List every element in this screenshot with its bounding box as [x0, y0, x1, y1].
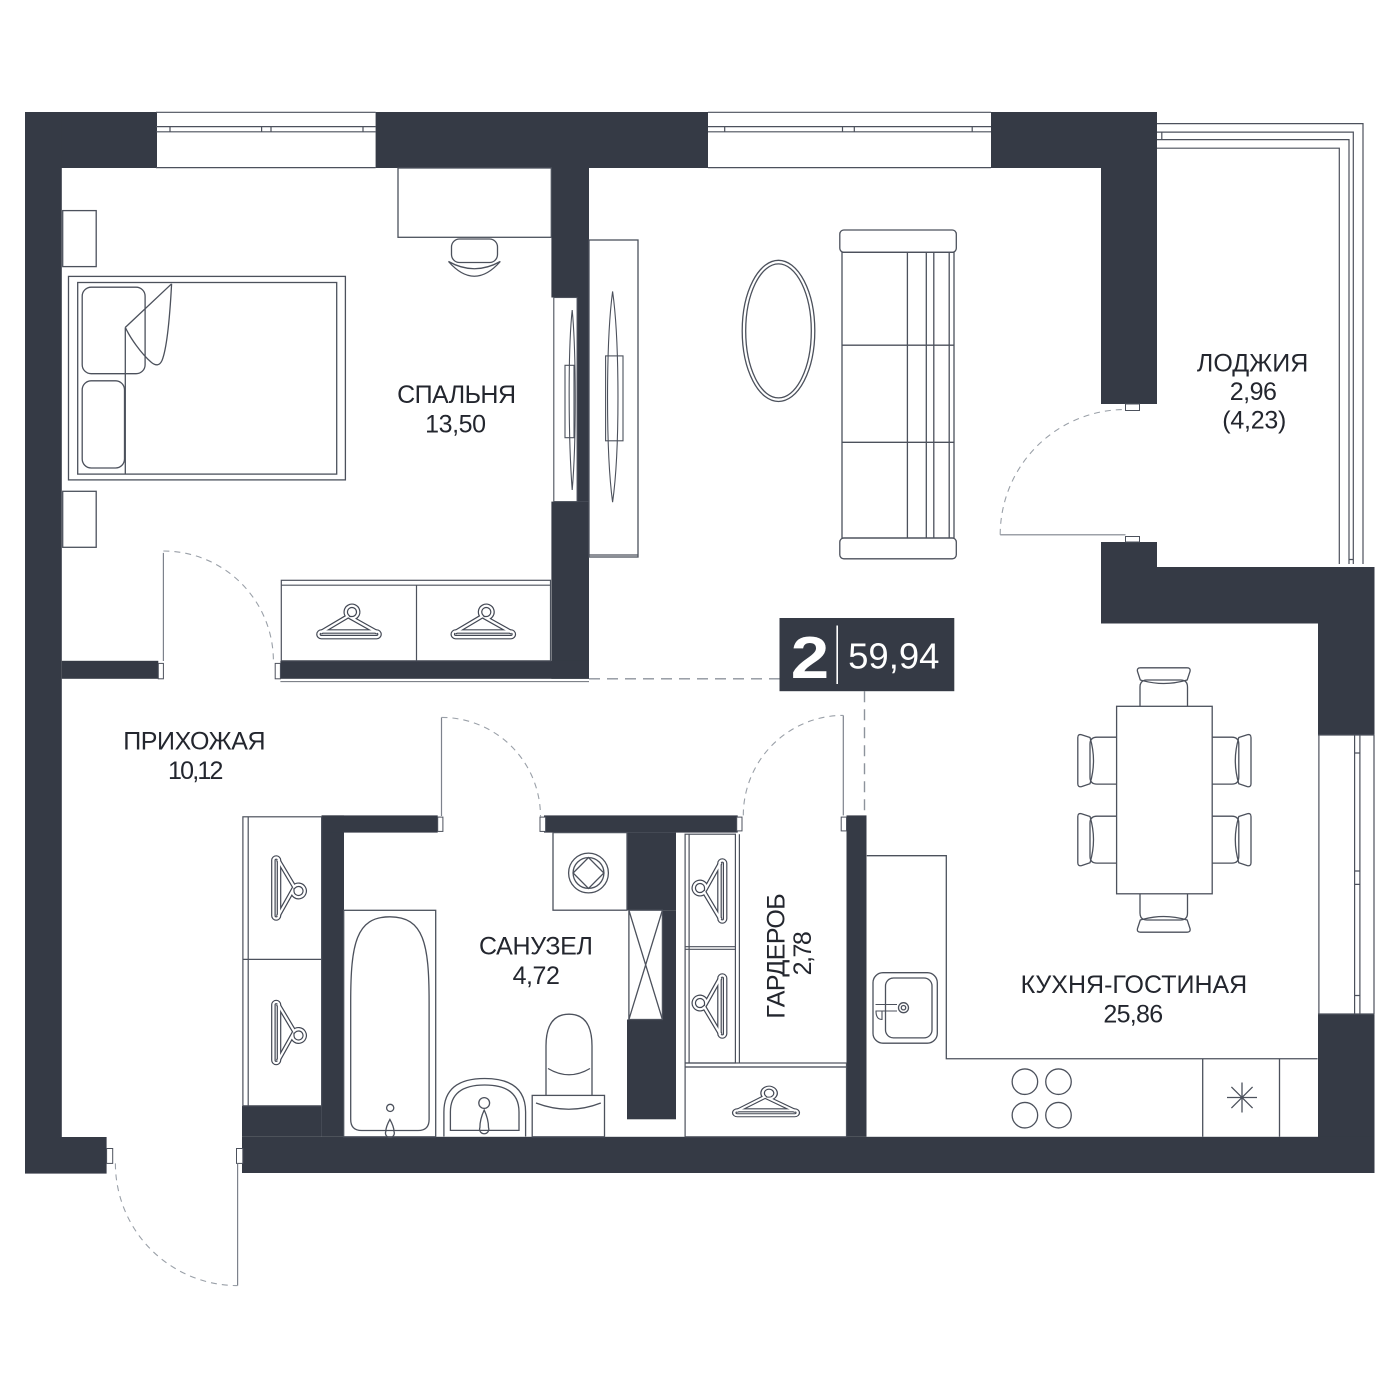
svg-text:10,12: 10,12: [168, 757, 222, 785]
svg-text:13,50: 13,50: [425, 410, 486, 438]
svg-text:СПАЛЬНЯ: СПАЛЬНЯ: [397, 381, 515, 409]
svg-text:САНУЗЕЛ: САНУЗЕЛ: [479, 933, 593, 961]
svg-text:ГАРДЕРОБ: ГАРДЕРОБ: [763, 894, 791, 1019]
svg-text:4,72: 4,72: [513, 962, 560, 990]
svg-text:2: 2: [791, 625, 829, 691]
svg-text:2,96: 2,96: [1230, 378, 1277, 406]
svg-text:КУХНЯ-ГОСТИНАЯ: КУХНЯ-ГОСТИНАЯ: [1021, 971, 1248, 999]
svg-text:59,94: 59,94: [848, 635, 939, 676]
svg-text:2,78: 2,78: [789, 932, 817, 975]
svg-text:25,86: 25,86: [1103, 1001, 1162, 1029]
svg-text:ПРИХОЖАЯ: ПРИХОЖАЯ: [123, 728, 265, 756]
svg-text:(4,23): (4,23): [1222, 406, 1286, 434]
svg-text:ЛОДЖИЯ: ЛОДЖИЯ: [1197, 350, 1308, 378]
